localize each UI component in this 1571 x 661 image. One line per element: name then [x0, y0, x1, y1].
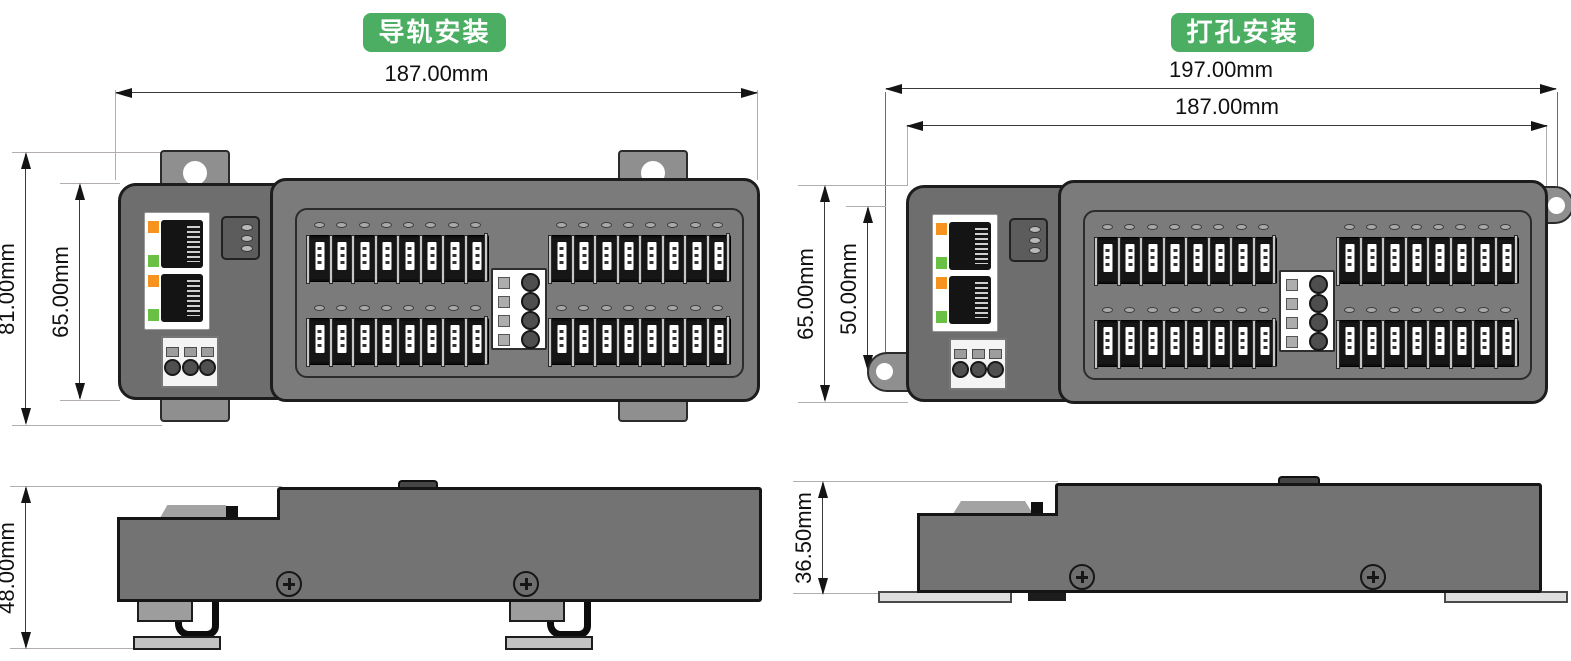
- ethernet-led-orange-icon: [936, 277, 947, 289]
- dim-line: [907, 125, 1547, 126]
- io-terminal-group: [1336, 306, 1519, 367]
- io-terminal-icon: [1141, 323, 1163, 364]
- io-terminal-icon: [1254, 323, 1276, 364]
- io-channel-led-icon: [1147, 224, 1158, 230]
- connector-clamp-icon: [498, 334, 510, 346]
- io-channel-led-icon: [425, 305, 436, 311]
- io-terminal-icon: [353, 238, 375, 279]
- dim-width-body-screw: 187.00mm: [906, 97, 1548, 131]
- dim-line: [25, 488, 26, 647]
- io-channel-led-icon: [425, 222, 436, 228]
- clip-body: [137, 600, 193, 622]
- clip-body: [509, 600, 565, 622]
- io-terminal-icon: [708, 238, 730, 279]
- io-channel-led-icon: [359, 305, 370, 311]
- terminal-clamp-icon: [972, 349, 985, 359]
- power-terminal-block: [161, 336, 219, 388]
- screw-mount-badge: 打孔安装: [1171, 13, 1314, 52]
- arrow-down-icon: [820, 385, 830, 402]
- ethernet-port: [935, 220, 995, 272]
- arrow-right-icon: [1540, 84, 1557, 94]
- power-terminal-pin: [199, 347, 216, 376]
- lug-hole-icon: [1548, 197, 1565, 214]
- extension-line: [798, 402, 908, 403]
- hole-center-line: [1557, 92, 1558, 198]
- terminal-clamp-icon: [954, 349, 967, 359]
- io-terminal-group: [306, 304, 489, 365]
- io-channel-led-icon: [601, 305, 612, 311]
- io-terminal-icon: [640, 238, 662, 279]
- io-channel-led-icon: [1433, 307, 1444, 313]
- ethernet-panel: [144, 212, 210, 330]
- io-led-row: [1344, 223, 1511, 230]
- front-view-screw-mount: [903, 152, 1548, 426]
- dimension-drawing-canvas: 导轨安装 187.00mm 81.00mm 65.00mm: [0, 0, 1571, 661]
- status-led-icon: [1029, 226, 1041, 233]
- arrow-up-icon: [818, 481, 828, 498]
- front-view-rail-mount: [115, 150, 760, 424]
- io-channel-led-icon: [1169, 307, 1180, 313]
- ethernet-panel: [932, 214, 998, 332]
- status-led-icon: [1029, 247, 1041, 254]
- io-terminal-icon: [1383, 323, 1405, 364]
- dim-line: [824, 187, 825, 400]
- io-terminal-icon: [1164, 240, 1186, 281]
- io-channel-led-icon: [1389, 307, 1400, 313]
- dim-label: 48.00mm: [0, 522, 20, 614]
- io-channel-led-icon: [712, 222, 723, 228]
- terminal-clamp-icon: [184, 347, 197, 357]
- io-channel-led-icon: [712, 305, 723, 311]
- io-terminal-group: [548, 221, 731, 282]
- screw-icon: [513, 571, 539, 597]
- io-terminal-icon: [443, 238, 465, 279]
- terminal-clamp-icon: [201, 347, 214, 357]
- connector-pin-row: [498, 330, 540, 349]
- center-power-connector: [491, 268, 547, 350]
- io-channel-led-icon: [623, 305, 634, 311]
- hole-center-line: [885, 92, 886, 364]
- connector-pin-row: [498, 292, 540, 311]
- connector-hole-icon: [521, 292, 540, 311]
- io-terminal-row: [306, 318, 489, 365]
- ethernet-port: [147, 272, 207, 324]
- dim-line: [79, 185, 80, 398]
- io-channel-led-icon: [1411, 307, 1422, 313]
- io-terminal-icon: [1231, 240, 1253, 281]
- io-channel-led-icon: [601, 222, 612, 228]
- io-channel-led-icon: [359, 222, 370, 228]
- power-terminal-pin: [970, 349, 987, 378]
- screw-cross-icon: [278, 573, 300, 595]
- status-led-icon: [1029, 237, 1041, 244]
- dim-side-height-screw: 36.50mm: [797, 481, 823, 595]
- io-led-row: [314, 221, 481, 228]
- io-terminal-icon: [1406, 240, 1428, 281]
- clip-base: [505, 636, 593, 650]
- dim-label: 197.00mm: [885, 57, 1557, 83]
- connector-hole-icon: [521, 330, 540, 349]
- io-terminal-icon: [1406, 323, 1428, 364]
- side-body-low: [917, 513, 1062, 593]
- connector-pin-row: [498, 273, 540, 292]
- io-channel-led-icon: [314, 222, 325, 228]
- io-channel-led-icon: [1124, 224, 1135, 230]
- io-led-row: [1344, 306, 1511, 313]
- terminal-hole-icon: [987, 361, 1004, 378]
- ethernet-port: [935, 274, 995, 326]
- io-channel-led-icon: [470, 305, 481, 311]
- io-channel-led-icon: [1366, 224, 1377, 230]
- arrow-down-icon: [21, 408, 31, 425]
- io-terminal-icon: [353, 321, 375, 362]
- dim-label: 187.00mm: [906, 94, 1548, 120]
- io-channel-led-icon: [1258, 224, 1269, 230]
- io-channel-led-icon: [1124, 307, 1135, 313]
- connector-hole-icon: [1309, 313, 1328, 332]
- arrow-up-icon: [863, 206, 873, 223]
- io-channel-led-icon: [1236, 224, 1247, 230]
- clip-base: [133, 636, 221, 650]
- ethernet-led-green-icon: [148, 255, 159, 267]
- io-terminal-row: [1094, 237, 1277, 284]
- io-channel-led-icon: [1191, 307, 1202, 313]
- io-channel-led-icon: [1344, 307, 1355, 313]
- io-channel-led-icon: [1455, 224, 1466, 230]
- dim-side-height-rail: 48.00mm: [0, 486, 26, 649]
- connector-pin-row: [498, 311, 540, 330]
- io-terminal-group: [1336, 223, 1519, 284]
- rj45-connector-icon: [949, 222, 991, 270]
- tab-notch-icon: [183, 161, 207, 185]
- io-terminal-panel: [295, 208, 744, 378]
- screw-cross-icon: [1362, 566, 1384, 588]
- io-terminal-icon: [685, 321, 707, 362]
- io-channel-led-icon: [1213, 224, 1224, 230]
- io-channel-led-icon: [578, 222, 589, 228]
- io-terminal-icon: [595, 238, 617, 279]
- ethernet-led-green-icon: [936, 257, 947, 269]
- io-terminal-icon: [640, 321, 662, 362]
- io-channel-led-icon: [556, 222, 567, 228]
- ethernet-led-green-icon: [936, 311, 947, 323]
- io-terminal-icon: [1338, 323, 1360, 364]
- connector-clamp-icon: [1286, 279, 1298, 291]
- io-channel-led-icon: [336, 222, 347, 228]
- io-channel-led-icon: [448, 222, 459, 228]
- io-terminal-icon: [550, 321, 572, 362]
- connector-hole-icon: [1309, 294, 1328, 313]
- dim-hole-span-screw: 50.00mm: [842, 206, 868, 372]
- io-terminal-panel: [1083, 210, 1532, 380]
- status-led-cluster: [221, 216, 260, 260]
- io-channel-led-icon: [381, 222, 392, 228]
- io-channel-led-icon: [1213, 307, 1224, 313]
- arrow-up-icon: [820, 185, 830, 202]
- io-terminal-row: [1336, 320, 1519, 367]
- io-terminal-icon: [1141, 240, 1163, 281]
- connector-clamp-icon: [1286, 298, 1298, 310]
- dim-line: [867, 208, 868, 370]
- io-led-row: [1102, 223, 1269, 230]
- terminal-hole-icon: [199, 359, 216, 376]
- io-led-row: [556, 221, 723, 228]
- io-terminal-group: [1094, 223, 1277, 284]
- io-terminal-icon: [1451, 240, 1473, 281]
- io-terminal-group: [548, 304, 731, 365]
- connector-pin-row: [1286, 332, 1328, 351]
- din-rail-clip: [133, 600, 225, 650]
- io-channel-led-icon: [1258, 307, 1269, 313]
- power-terminal-pin: [182, 347, 199, 376]
- controller-module: [118, 183, 288, 400]
- connector-hole-icon: [521, 273, 540, 292]
- io-channel-led-icon: [690, 305, 701, 311]
- rj45-connector-icon: [161, 220, 203, 268]
- dim-label: 187.00mm: [115, 61, 758, 87]
- io-terminal-icon: [573, 321, 595, 362]
- controller-module: [906, 185, 1076, 402]
- io-channel-led-icon: [667, 222, 678, 228]
- io-terminal-icon: [1186, 240, 1208, 281]
- dim-line: [25, 154, 26, 423]
- io-channel-led-icon: [1433, 224, 1444, 230]
- terminal-clamp-icon: [166, 347, 179, 357]
- ethernet-led-orange-icon: [148, 275, 159, 287]
- arrow-down-icon: [75, 383, 85, 400]
- io-led-row: [556, 304, 723, 311]
- io-led-row: [314, 304, 481, 311]
- io-channel-led-icon: [1455, 307, 1466, 313]
- io-terminal-icon: [708, 321, 730, 362]
- power-terminal-pin: [164, 347, 181, 376]
- io-terminal-icon: [1096, 240, 1118, 281]
- io-terminal-group: [1094, 306, 1277, 367]
- io-terminal-icon: [376, 238, 398, 279]
- dim-label: 65.00mm: [793, 248, 819, 340]
- io-terminal-icon: [618, 321, 640, 362]
- io-channel-led-icon: [1102, 224, 1113, 230]
- terminal-clamp-icon: [989, 349, 1002, 359]
- io-terminal-icon: [443, 321, 465, 362]
- ethernet-port: [147, 218, 207, 270]
- io-terminal-icon: [1496, 323, 1518, 364]
- io-channel-led-icon: [1500, 224, 1511, 230]
- io-channel-led-icon: [1236, 307, 1247, 313]
- connector-pin-row: [1286, 313, 1328, 332]
- dim-width-body-rail: 187.00mm: [115, 64, 758, 98]
- connector-clamp-icon: [498, 296, 510, 308]
- io-channel-led-icon: [556, 305, 567, 311]
- io-channel-led-icon: [1478, 224, 1489, 230]
- io-terminal-icon: [1164, 323, 1186, 364]
- arrow-up-icon: [21, 152, 31, 169]
- io-channel-led-icon: [448, 305, 459, 311]
- arrow-left-icon: [906, 121, 923, 131]
- connector-hole-icon: [1309, 275, 1328, 294]
- io-terminal-icon: [1383, 240, 1405, 281]
- screw-cross-icon: [515, 573, 537, 595]
- io-terminal-icon: [308, 321, 330, 362]
- status-led-icon: [241, 245, 253, 252]
- io-terminal-icon: [1428, 323, 1450, 364]
- io-terminal-icon: [663, 321, 685, 362]
- io-channel-led-icon: [381, 305, 392, 311]
- io-terminal-icon: [1496, 240, 1518, 281]
- io-terminal-icon: [1428, 240, 1450, 281]
- connector-clamp-icon: [498, 315, 510, 327]
- io-channel-led-icon: [336, 305, 347, 311]
- io-terminal-icon: [1451, 323, 1473, 364]
- status-led-icon: [241, 224, 253, 231]
- io-terminal-icon: [1186, 323, 1208, 364]
- lug-hole-icon: [876, 363, 893, 380]
- io-terminal-icon: [573, 238, 595, 279]
- io-terminal-row: [306, 235, 489, 282]
- io-terminal-row: [548, 318, 731, 365]
- io-terminal-icon: [398, 238, 420, 279]
- io-terminal-icon: [618, 238, 640, 279]
- terminal-hole-icon: [952, 361, 969, 378]
- io-channel-led-icon: [1389, 224, 1400, 230]
- side-view-screw-mount: [903, 472, 1571, 612]
- terminal-hole-icon: [182, 359, 199, 376]
- io-channel-led-icon: [1169, 224, 1180, 230]
- dim-height-outer-rail: 81.00mm: [0, 152, 26, 425]
- ethernet-led-orange-icon: [148, 221, 159, 233]
- extension-line: [60, 400, 120, 401]
- rj45-connector-icon: [161, 274, 203, 322]
- status-led-cluster: [1009, 218, 1048, 262]
- dim-height-body-rail: 65.00mm: [54, 183, 80, 400]
- io-terminal-icon: [1119, 323, 1141, 364]
- io-terminal-icon: [331, 321, 353, 362]
- io-terminal-group: [306, 221, 489, 282]
- connector-hole-icon: [1309, 332, 1328, 351]
- extension-line: [12, 425, 162, 426]
- io-terminal-icon: [376, 321, 398, 362]
- io-channel-led-icon: [645, 222, 656, 228]
- io-channel-led-icon: [403, 305, 414, 311]
- power-terminal-pin: [952, 349, 969, 378]
- io-channel-led-icon: [690, 222, 701, 228]
- dim-label: 50.00mm: [836, 243, 862, 335]
- screw-icon: [276, 571, 302, 597]
- din-rail-clip: [505, 600, 597, 650]
- io-terminal-row: [1094, 320, 1277, 367]
- terminal-hole-icon: [970, 361, 987, 378]
- arrow-down-icon: [818, 578, 828, 595]
- io-terminal-icon: [1209, 240, 1231, 281]
- io-channel-led-icon: [1147, 307, 1158, 313]
- arrow-down-icon: [21, 632, 31, 649]
- io-terminal-row: [1336, 237, 1519, 284]
- arrow-up-icon: [21, 486, 31, 503]
- io-terminal-row: [548, 235, 731, 282]
- io-terminal-icon: [1361, 323, 1383, 364]
- arrow-left-icon: [115, 88, 132, 98]
- io-terminal-icon: [1231, 323, 1253, 364]
- dim-label: 65.00mm: [48, 246, 74, 338]
- io-channel-led-icon: [667, 305, 678, 311]
- connector-hole-icon: [521, 311, 540, 330]
- io-terminal-icon: [1209, 323, 1231, 364]
- io-module: [270, 178, 760, 402]
- screw-icon: [1360, 564, 1386, 590]
- rail-mount-badge: 导轨安装: [363, 13, 506, 52]
- io-terminal-icon: [663, 238, 685, 279]
- io-terminal-icon: [421, 321, 443, 362]
- dim-line: [822, 483, 823, 593]
- center-power-connector: [1279, 270, 1335, 352]
- side-body-low: [117, 517, 283, 602]
- ethernet-led-orange-icon: [936, 223, 947, 235]
- dim-width-outer-screw: 197.00mm: [885, 60, 1557, 94]
- dim-label: 81.00mm: [0, 243, 20, 335]
- arrow-up-icon: [75, 183, 85, 200]
- io-terminal-icon: [1254, 240, 1276, 281]
- dim-label: 36.50mm: [791, 492, 817, 584]
- io-channel-led-icon: [1344, 224, 1355, 230]
- connector-clamp-icon: [1286, 336, 1298, 348]
- io-terminal-icon: [1361, 240, 1383, 281]
- io-channel-led-icon: [645, 305, 656, 311]
- io-channel-led-icon: [403, 222, 414, 228]
- arrow-right-icon: [741, 88, 758, 98]
- io-channel-led-icon: [1478, 307, 1489, 313]
- io-channel-led-icon: [623, 222, 634, 228]
- io-terminal-icon: [1119, 240, 1141, 281]
- status-led-icon: [241, 235, 253, 242]
- screw-cross-icon: [1071, 566, 1093, 588]
- dim-height-body-screw: 65.00mm: [799, 185, 825, 402]
- dim-line: [116, 92, 757, 93]
- connector-clamp-icon: [498, 277, 510, 289]
- io-terminal-icon: [466, 238, 488, 279]
- io-terminal-icon: [685, 238, 707, 279]
- io-channel-led-icon: [470, 222, 481, 228]
- rj45-connector-icon: [949, 276, 991, 324]
- io-terminal-icon: [1473, 323, 1495, 364]
- connector-clamp-icon: [1286, 317, 1298, 329]
- io-led-row: [1102, 306, 1269, 313]
- io-channel-led-icon: [1500, 307, 1511, 313]
- ethernet-led-green-icon: [148, 309, 159, 321]
- connector-pin-row: [1286, 294, 1328, 313]
- dim-line: [886, 88, 1556, 89]
- io-terminal-icon: [421, 238, 443, 279]
- terminal-hole-icon: [164, 359, 181, 376]
- connector-pin-row: [1286, 275, 1328, 294]
- io-terminal-icon: [466, 321, 488, 362]
- io-channel-led-icon: [1102, 307, 1113, 313]
- io-channel-led-icon: [314, 305, 325, 311]
- power-terminal-pin: [987, 349, 1004, 378]
- arrow-right-icon: [1531, 121, 1548, 131]
- io-terminal-icon: [398, 321, 420, 362]
- io-channel-led-icon: [1411, 224, 1422, 230]
- io-terminal-icon: [331, 238, 353, 279]
- side-body-high: [1055, 483, 1542, 593]
- io-terminal-icon: [308, 238, 330, 279]
- screw-icon: [1069, 564, 1095, 590]
- io-module: [1058, 180, 1548, 404]
- io-terminal-icon: [550, 238, 572, 279]
- io-channel-led-icon: [578, 305, 589, 311]
- power-terminal-block: [949, 338, 1007, 390]
- side-view-rail-mount: [115, 477, 765, 655]
- io-terminal-icon: [595, 321, 617, 362]
